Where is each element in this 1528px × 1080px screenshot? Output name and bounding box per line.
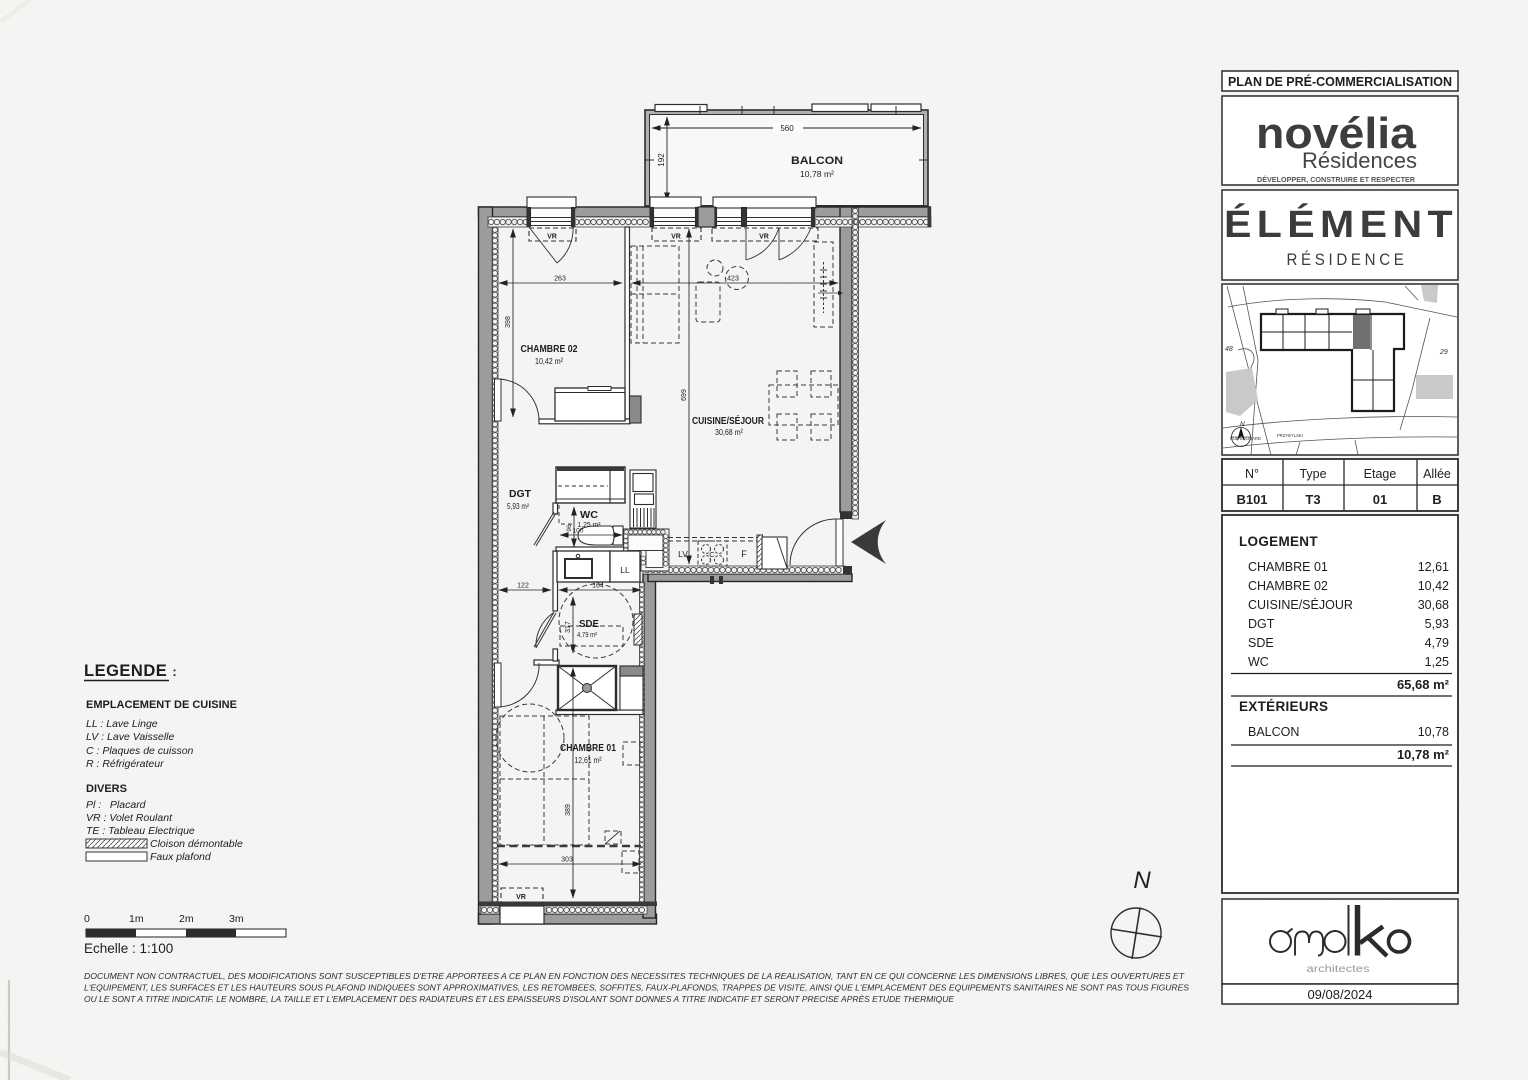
svg-text:LV : Lave Vaisselle: LV : Lave Vaisselle	[86, 731, 174, 743]
svg-text:DÉVELOPPER, CONSTRUIRE ET RESP: DÉVELOPPER, CONSTRUIRE ET RESPECTER	[1257, 175, 1416, 184]
svg-text:SDE: SDE	[579, 619, 599, 630]
svg-text:10,42 m²: 10,42 m²	[535, 356, 563, 366]
svg-text:ÉLÉMENT: ÉLÉMENT	[1224, 202, 1458, 246]
svg-text:LOGEMENT: LOGEMENT	[1239, 534, 1318, 549]
svg-text:VR : Volet Roulant: VR : Volet Roulant	[86, 812, 173, 824]
svg-text:EXTÉRIEURS: EXTÉRIEURS	[1239, 699, 1328, 714]
svg-text:LV: LV	[678, 549, 688, 559]
svg-text:RÉSIDENCE: RÉSIDENCE	[1287, 250, 1408, 269]
svg-text:5,93 m²: 5,93 m²	[507, 502, 529, 511]
svg-text:N°: N°	[1245, 467, 1259, 481]
svg-text:LL : Lave Linge: LL : Lave Linge	[86, 718, 158, 730]
svg-text:389: 389	[565, 804, 572, 816]
svg-text:12,61: 12,61	[1418, 560, 1449, 574]
svg-text:Allée: Allée	[1423, 467, 1451, 481]
svg-text:F: F	[741, 549, 747, 559]
svg-text:192: 192	[657, 153, 666, 167]
svg-text:DGT: DGT	[509, 489, 531, 500]
svg-text:OU LE SONT A TITRE INDICATIF.: OU LE SONT A TITRE INDICATIF. LE NOMBRE,…	[84, 994, 954, 1004]
svg-text:DOCUMENT NON CONTRACTUEL, DES: DOCUMENT NON CONTRACTUEL, DES MODIFICATI…	[84, 971, 1185, 981]
svg-text:65,68 m²: 65,68 m²	[1397, 677, 1450, 692]
svg-text:10,42: 10,42	[1418, 579, 1449, 593]
svg-text:2m: 2m	[179, 913, 194, 925]
svg-text:CHAMBRE 02: CHAMBRE 02	[1248, 579, 1328, 593]
svg-text:TE : Tableau Electrique: TE : Tableau Electrique	[86, 825, 195, 837]
svg-text:CHAMBRE 01: CHAMBRE 01	[560, 743, 616, 754]
svg-text:Résidences: Résidences	[1302, 148, 1417, 173]
svg-text:B: B	[1432, 492, 1441, 507]
svg-text:10,78: 10,78	[1418, 725, 1449, 739]
svg-text:164: 164	[592, 583, 604, 590]
svg-text:3m: 3m	[229, 913, 244, 925]
svg-text:Type: Type	[1299, 467, 1326, 481]
svg-text:BALCON: BALCON	[1248, 725, 1299, 739]
svg-text:122: 122	[517, 583, 529, 590]
svg-text:VR: VR	[547, 234, 557, 241]
svg-text:LEGENDE :: LEGENDE :	[84, 662, 177, 680]
svg-text:317: 317	[565, 621, 572, 633]
svg-text:CUISINE/SÉJOUR: CUISINE/SÉJOUR	[692, 414, 764, 427]
svg-text:R : Réfrigérateur: R : Réfrigérateur	[86, 758, 164, 770]
svg-text:LL: LL	[620, 565, 630, 575]
svg-text:398: 398	[505, 316, 512, 328]
svg-text:SDE: SDE	[1248, 636, 1274, 650]
svg-text:30,68 m²: 30,68 m²	[715, 427, 743, 437]
svg-text:DIVERS: DIVERS	[86, 783, 127, 795]
svg-text:EMPLACEMENT DE CUISINE: EMPLACEMENT DE CUISINE	[86, 699, 237, 711]
svg-text:PRZYBYLSKI: PRZYBYLSKI	[1277, 433, 1303, 438]
svg-text:CHAMBRE 02: CHAMBRE 02	[521, 344, 578, 355]
svg-text:Echelle : 1:100: Echelle : 1:100	[84, 941, 173, 956]
svg-text:PLAN DE PRÉ-COMMERCIALISATION: PLAN DE PRÉ-COMMERCIALISATION	[1228, 74, 1452, 89]
svg-text:VR: VR	[671, 234, 681, 241]
svg-text:BALCON: BALCON	[791, 155, 843, 167]
svg-text:263: 263	[554, 276, 566, 283]
svg-text:N: N	[1133, 867, 1151, 894]
svg-text:1,25: 1,25	[1425, 655, 1449, 669]
svg-text:VR: VR	[759, 234, 769, 241]
svg-text:B101: B101	[1236, 492, 1267, 507]
svg-text:30,68: 30,68	[1418, 598, 1449, 612]
svg-text:5,93: 5,93	[1425, 617, 1449, 631]
svg-text:10,78 m²: 10,78 m²	[1397, 747, 1450, 762]
svg-text:C : Plaques de cuisson: C : Plaques de cuisson	[86, 745, 194, 757]
svg-text:10,78 m²: 10,78 m²	[800, 169, 834, 179]
svg-text:N: N	[1240, 421, 1245, 428]
svg-text:1,25 m²: 1,25 m²	[578, 520, 601, 529]
svg-text:48: 48	[1225, 346, 1233, 353]
svg-text:T3: T3	[1305, 492, 1320, 507]
svg-text:4,79 m²: 4,79 m²	[577, 630, 597, 639]
svg-text:CUISINE/SÉJOUR: CUISINE/SÉJOUR	[1248, 597, 1353, 612]
svg-text:1m: 1m	[129, 913, 144, 925]
svg-text:423: 423	[727, 276, 739, 283]
svg-text:12,61 m²: 12,61 m²	[575, 755, 602, 765]
svg-text:Cloison démontable: Cloison démontable	[150, 838, 243, 850]
svg-text:01: 01	[1373, 492, 1387, 507]
svg-text:699: 699	[681, 389, 688, 401]
svg-text:architectes: architectes	[1307, 964, 1370, 975]
svg-text:09/08/2024: 09/08/2024	[1307, 987, 1372, 1002]
svg-text:DGT: DGT	[1248, 617, 1275, 631]
svg-text:560: 560	[780, 124, 794, 133]
svg-text:L'EQUIPEMENT, LES SURFACES ET: L'EQUIPEMENT, LES SURFACES ET LES HAUTEU…	[84, 983, 1189, 993]
svg-text:4,79: 4,79	[1425, 636, 1449, 650]
svg-text:Faux plafond: Faux plafond	[150, 851, 212, 863]
svg-text:C: C	[709, 550, 715, 559]
svg-text:VR: VR	[516, 894, 526, 901]
svg-text:Etage: Etage	[1364, 467, 1397, 481]
svg-text:WC: WC	[1248, 655, 1269, 669]
svg-text:Pl : Placard: Pl : Placard	[86, 799, 147, 811]
svg-text:CHAMBRE 01: CHAMBRE 01	[1248, 560, 1328, 574]
svg-text:303: 303	[561, 857, 573, 864]
svg-text:29: 29	[1439, 349, 1448, 356]
svg-text:0: 0	[84, 913, 90, 925]
